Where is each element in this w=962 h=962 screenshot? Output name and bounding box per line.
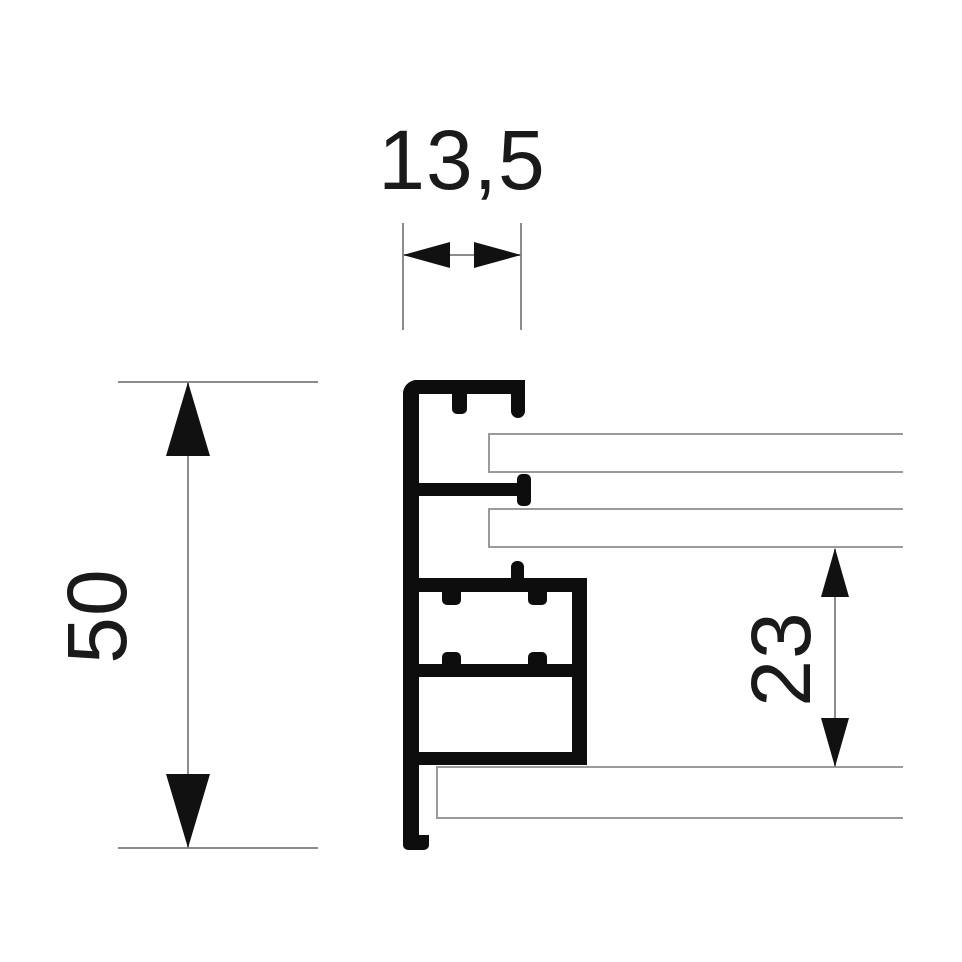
profile-box-top-nib (511, 561, 524, 579)
dim-right-offset-label: 23 (739, 611, 823, 706)
profile-box-bottom-wall (419, 752, 587, 765)
profile-top-channel-tooth (452, 394, 467, 414)
extension-line-right (520, 223, 522, 330)
arrow-right-icon (474, 242, 521, 268)
profile-bottom-foot (403, 835, 429, 850)
infill-panel-middle (488, 508, 903, 548)
infill-panel-bottom (436, 766, 903, 819)
profile-box-top-wall (419, 578, 587, 592)
profile-middle-arm (419, 483, 521, 496)
extension-line-top (118, 381, 318, 383)
profile-box-right-wall (572, 578, 587, 765)
profile-box-tooth-top-left (442, 591, 461, 605)
extension-line-left (402, 223, 404, 330)
profile-middle-arm-t-end (517, 474, 531, 506)
profile-top-wall (403, 380, 525, 394)
profile-top-right-lip (511, 380, 525, 418)
arrow-up-icon (166, 382, 210, 456)
arrow-up-small-icon (821, 548, 849, 597)
profile-box-tooth-top-right (528, 591, 547, 605)
extension-line-bottom (118, 847, 318, 849)
profile-left-wall (403, 380, 419, 849)
drawing-canvas: 13,5 50 23 (0, 0, 962, 962)
arrow-down-icon (166, 774, 210, 848)
dim-top-width-label: 13,5 (378, 118, 546, 202)
arrow-down-small-icon (821, 718, 849, 767)
dim-overall-height-label: 50 (55, 568, 139, 663)
profile-box-middle-wall (419, 664, 572, 677)
infill-panel-upper (488, 433, 903, 473)
arrow-left-icon (403, 242, 450, 268)
